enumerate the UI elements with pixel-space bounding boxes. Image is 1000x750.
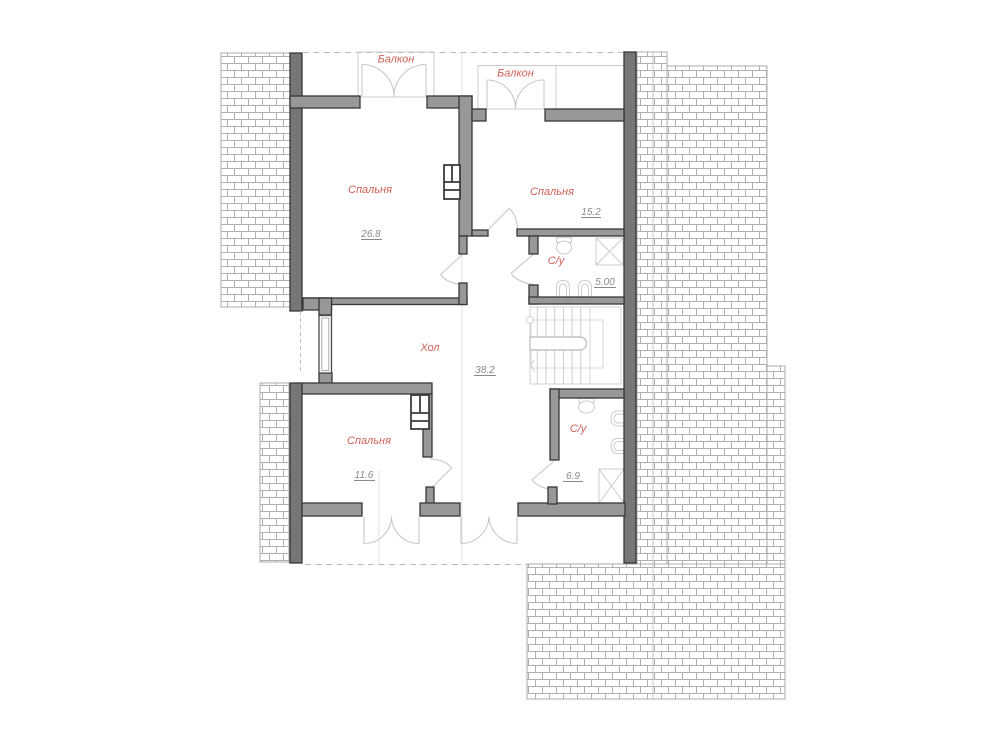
svg-text:Спальня: Спальня — [347, 435, 391, 447]
svg-text:15.2: 15.2 — [581, 207, 601, 218]
svg-text:Спальня: Спальня — [530, 186, 574, 198]
svg-text:38.2: 38.2 — [475, 365, 495, 376]
svg-text:Хол: Хол — [419, 342, 439, 354]
svg-text:5.00: 5.00 — [595, 277, 615, 288]
svg-text:Балкон: Балкон — [378, 54, 415, 66]
svg-text:11.6: 11.6 — [355, 470, 374, 481]
svg-text:Спальня: Спальня — [348, 184, 392, 196]
svg-text:С/у: С/у — [570, 423, 588, 435]
svg-text:Балкон: Балкон — [497, 68, 534, 80]
svg-text:6.9: 6.9 — [566, 471, 580, 482]
svg-text:26.8: 26.8 — [360, 229, 381, 240]
svg-text:С/у: С/у — [548, 255, 566, 267]
